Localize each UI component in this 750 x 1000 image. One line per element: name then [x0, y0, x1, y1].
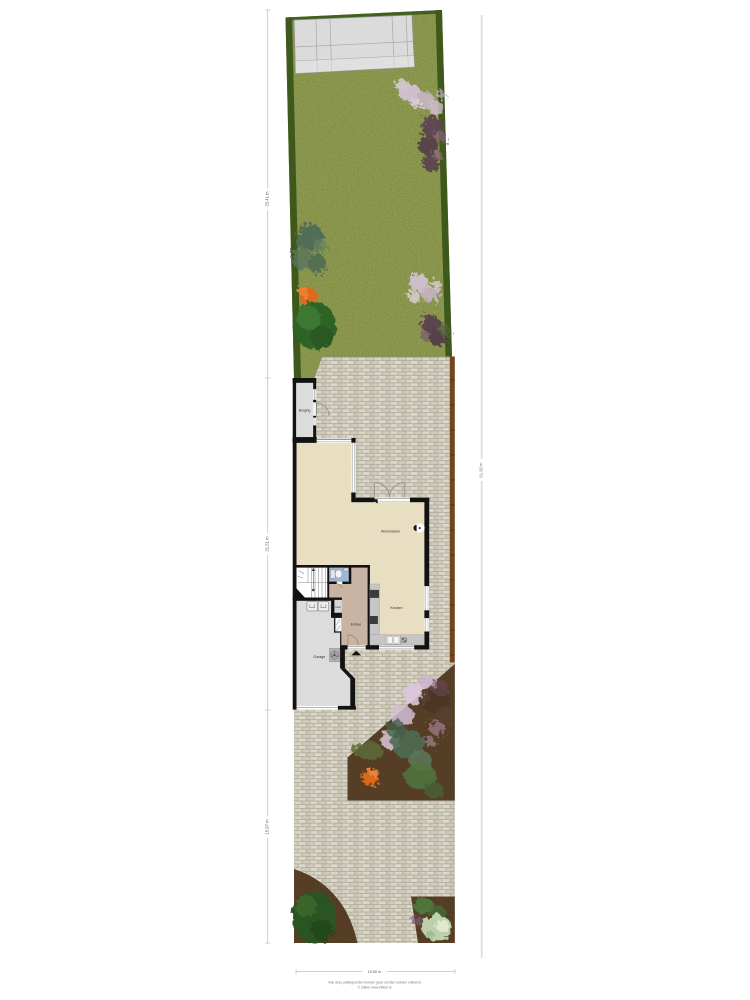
svg-text:23.41 m: 23.41 m: [265, 191, 270, 207]
svg-text:Woonkamer: Woonkamer: [381, 530, 401, 534]
svg-text:10.50 m: 10.50 m: [368, 970, 382, 974]
svg-text:61.90 m: 61.90 m: [479, 462, 484, 478]
svg-text:© Zibber www.zibber.nl: © Zibber www.zibber.nl: [358, 986, 392, 990]
svg-text:21.51 m: 21.51 m: [265, 536, 270, 552]
svg-text:Garage: Garage: [313, 655, 325, 659]
svg-text:15.97 m: 15.97 m: [265, 819, 270, 835]
svg-text:Berging: Berging: [299, 409, 311, 413]
svg-text:Keuken: Keuken: [390, 606, 402, 610]
svg-text:Aan deze plattegronden kunnen: Aan deze plattegronden kunnen geen recht…: [328, 981, 420, 985]
svg-text:Kast: Kast: [335, 605, 340, 609]
svg-text:Entree: Entree: [351, 622, 362, 626]
